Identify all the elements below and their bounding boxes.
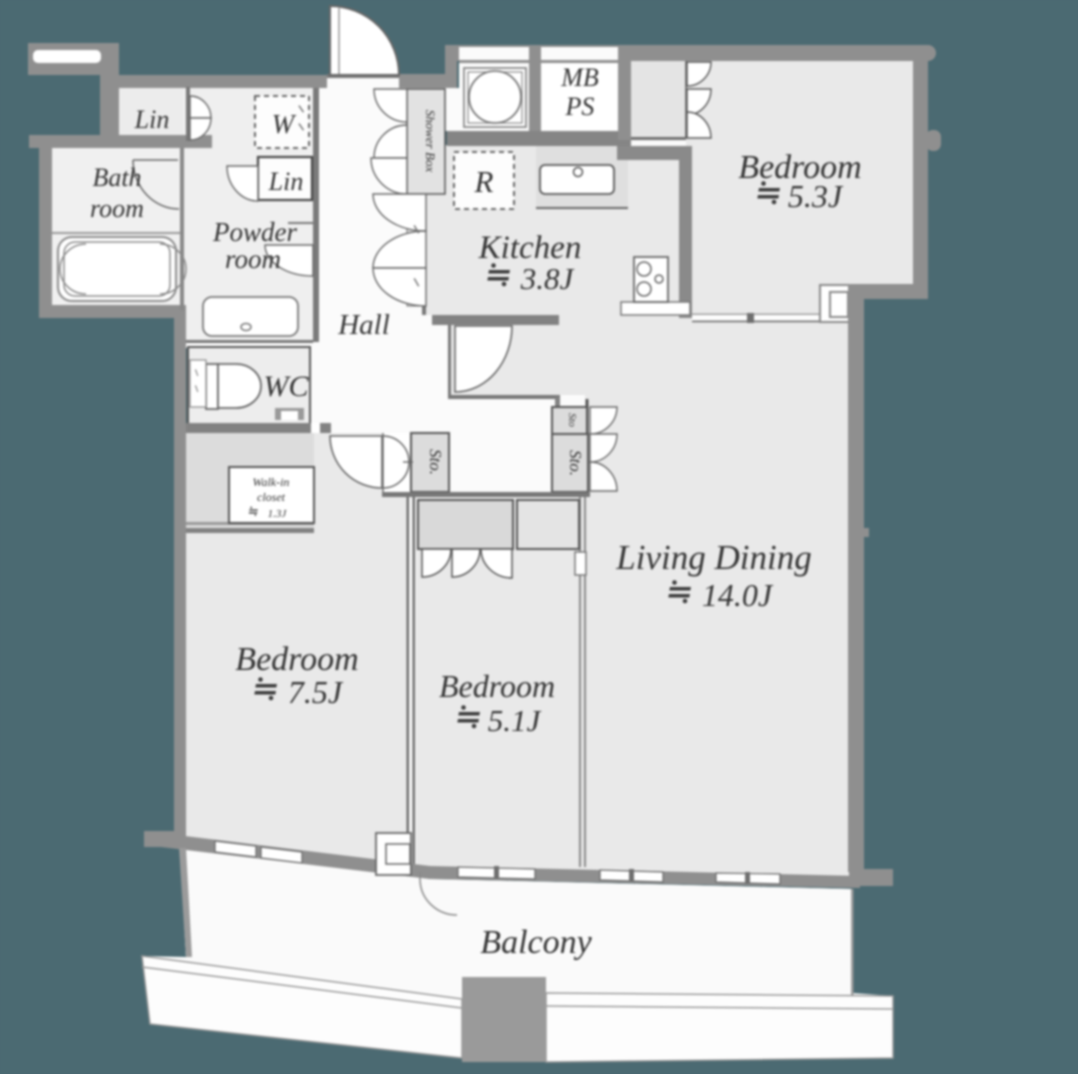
svg-text:W: W — [272, 109, 297, 139]
svg-text:room: room — [90, 194, 144, 223]
svg-text:Sto.: Sto. — [426, 449, 445, 475]
svg-text:7.5J: 7.5J — [288, 674, 344, 710]
svg-text:WC: WC — [264, 370, 310, 403]
svg-text:Sto.: Sto. — [566, 450, 585, 476]
svg-text:Walk-in: Walk-in — [253, 475, 290, 489]
svg-text:Bath: Bath — [92, 163, 141, 192]
svg-text:Bedroom: Bedroom — [439, 668, 555, 704]
svg-text:3.8J: 3.8J — [520, 261, 575, 296]
svg-text:Powder: Powder — [212, 217, 297, 247]
svg-text:R: R — [474, 164, 494, 199]
svg-text:14.0J: 14.0J — [702, 577, 774, 613]
svg-text:Lin: Lin — [268, 167, 304, 196]
svg-text:5.1J: 5.1J — [488, 703, 542, 738]
svg-text:5.3J: 5.3J — [788, 178, 844, 214]
svg-text:Balcony: Balcony — [480, 924, 592, 961]
svg-text:closet: closet — [257, 490, 286, 504]
svg-text:Sto: Sto — [566, 413, 578, 428]
svg-text:room: room — [225, 244, 281, 274]
svg-text:Hall: Hall — [337, 309, 390, 341]
svg-text:MB: MB — [560, 63, 599, 92]
svg-text:Living Dining: Living Dining — [615, 538, 811, 577]
svg-text:1.3J: 1.3J — [268, 508, 288, 520]
svg-text:Shower Box: Shower Box — [423, 110, 438, 173]
svg-text:Bedroom: Bedroom — [235, 641, 358, 678]
svg-text:Lin: Lin — [134, 105, 170, 134]
svg-text:PS: PS — [565, 92, 595, 121]
